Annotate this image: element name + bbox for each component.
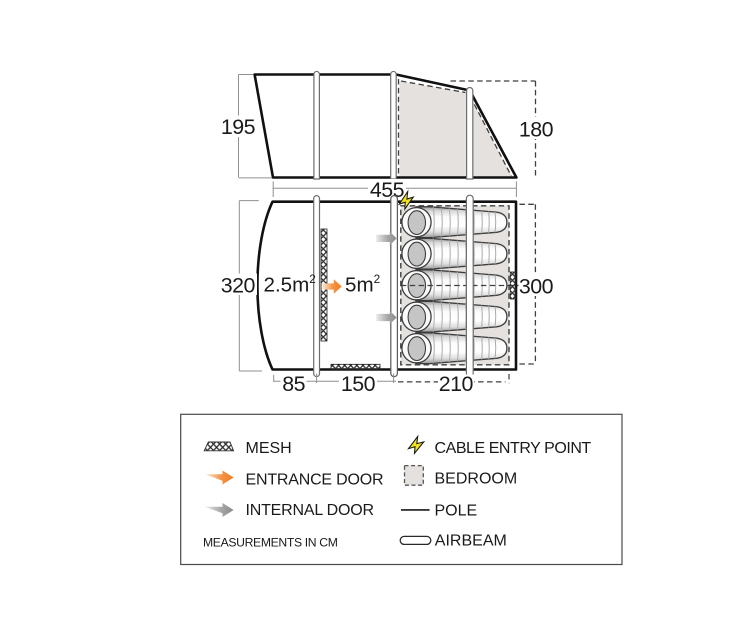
svg-text:320: 320	[221, 273, 256, 297]
svg-text:150: 150	[341, 372, 376, 396]
svg-text:5m2: 5m2	[345, 272, 380, 296]
svg-text:BEDROOM: BEDROOM	[435, 471, 518, 488]
svg-text:455: 455	[370, 178, 404, 202]
svg-text:210: 210	[439, 372, 474, 396]
svg-text:INTERNAL DOOR: INTERNAL DOOR	[246, 502, 374, 519]
svg-text:MESH: MESH	[246, 440, 292, 457]
svg-text:300: 300	[519, 275, 554, 299]
svg-text:MEASUREMENTS IN CM: MEASUREMENTS IN CM	[203, 536, 338, 550]
svg-text:POLE: POLE	[435, 503, 478, 520]
svg-text:ENTRANCE DOOR: ENTRANCE DOOR	[246, 472, 384, 489]
svg-text:CABLE ENTRY POINT: CABLE ENTRY POINT	[435, 440, 592, 457]
svg-text:85: 85	[282, 372, 305, 396]
svg-text:180: 180	[519, 118, 554, 142]
svg-text:195: 195	[221, 115, 255, 139]
svg-text:2.5m2: 2.5m2	[264, 272, 316, 296]
svg-text:AIRBEAM: AIRBEAM	[435, 533, 507, 550]
